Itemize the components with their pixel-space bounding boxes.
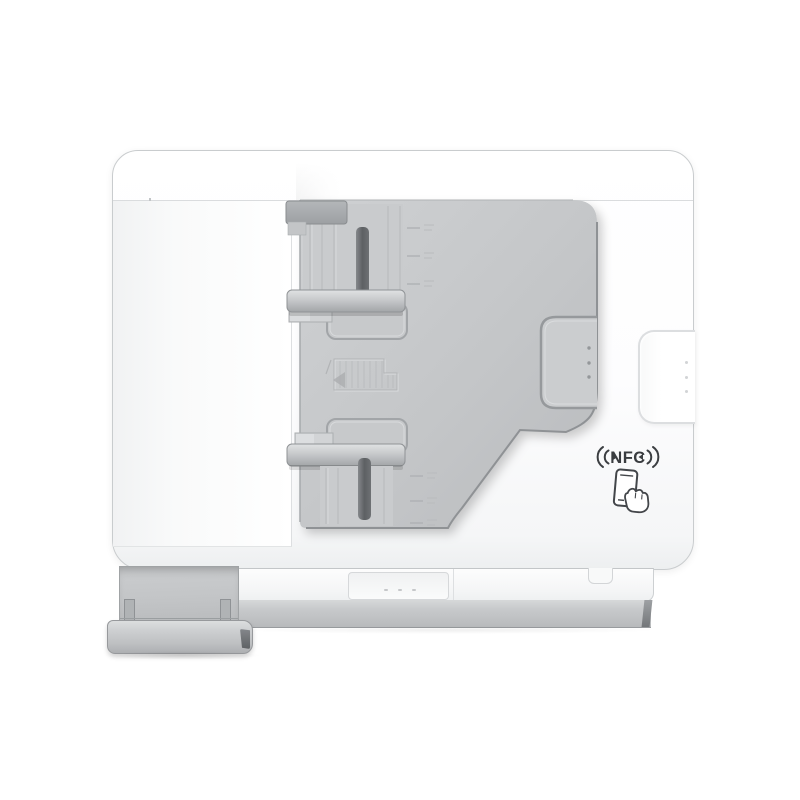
- grip-dot: [587, 375, 590, 378]
- scanner-lid-left-panel: [113, 201, 292, 547]
- base-strip-end-edge: [642, 600, 653, 627]
- front-dot: [412, 589, 416, 591]
- grip-dot: [685, 361, 688, 364]
- adf-tray-graphic: [270, 192, 620, 552]
- phone-tap-icon: [613, 469, 651, 513]
- lid-grip-recess: [638, 330, 695, 424]
- ground-shadow: [104, 651, 260, 660]
- upper-guide-slot: [356, 227, 369, 295]
- upper-width-guide-bar: [287, 290, 405, 312]
- product-photo-stage: NFC: [0, 0, 800, 800]
- front-dot: [398, 589, 402, 591]
- nfc-badge: NFC: [588, 441, 668, 515]
- lower-guide-rails: [320, 458, 393, 526]
- grip-dot: [587, 346, 590, 349]
- front-dot: [384, 589, 388, 591]
- lower-width-guide-bar: [287, 444, 405, 466]
- grip-dot: [587, 361, 590, 364]
- lower-guide-slot: [358, 458, 371, 520]
- nfc-label: NFC: [610, 449, 645, 467]
- front-recess-panel: [348, 572, 449, 600]
- upper-guide-cap: [286, 201, 347, 224]
- grip-dot: [685, 376, 688, 379]
- front-latch-tab: [588, 568, 613, 584]
- tray-grip-recess: [541, 317, 597, 408]
- grip-dot: [685, 390, 688, 393]
- output-tray-extension: [119, 566, 239, 623]
- ground-shadow: [240, 626, 660, 634]
- upper-guide-cap-step: [288, 222, 306, 235]
- output-tray-foot: [107, 620, 253, 654]
- tray-hinge-line: [120, 618, 238, 619]
- base-strip: [237, 600, 651, 628]
- front-panel-seam: [453, 569, 454, 601]
